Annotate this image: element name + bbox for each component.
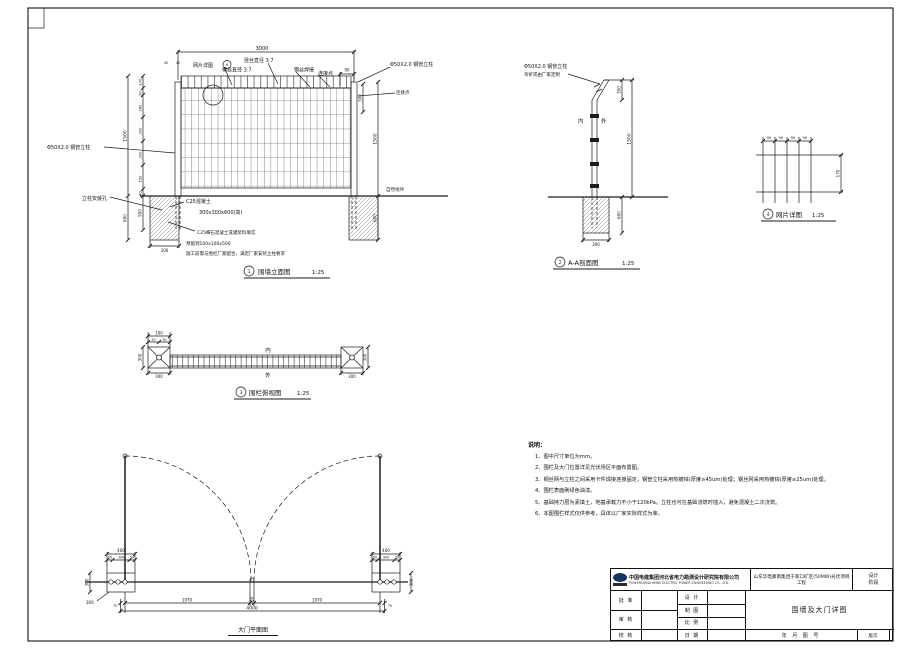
- gate-dim-end-l: 70: [113, 604, 117, 608]
- label-natural-ground: 自然地坪: [386, 186, 404, 193]
- mesh-title: 网片详图: [776, 210, 802, 219]
- plan-label-inner: 内: [265, 346, 271, 354]
- plan-dim-sub2: 50: [162, 338, 166, 342]
- label-reserve-hole: 预留洞100x100x500: [186, 240, 231, 247]
- gate-dim-side-r: 300: [409, 578, 414, 586]
- sec-label-inner: 内: [578, 117, 584, 125]
- field-date: 日 期: [677, 629, 707, 642]
- stage-line2: 阶段: [868, 580, 878, 587]
- mesh-dim-w4: 90: [803, 136, 808, 140]
- label-weld: 钢丝焊接: [294, 67, 314, 74]
- plan-dim-sub1: 50: [151, 338, 155, 342]
- company-name: 中国电建集团河北省电力勘测设计研究院有限公司: [629, 575, 739, 581]
- gate-dim-gap: 60: [250, 597, 254, 601]
- mesh-ref-number: 4: [226, 63, 229, 67]
- note-item-1: 1、图中尺寸单位为mm。: [528, 452, 890, 464]
- dim-off2: 40: [176, 61, 180, 65]
- dim-600-left: 600: [123, 214, 128, 222]
- section-title: A-A剖面图: [568, 258, 598, 267]
- cad-drawing: 3000 90 40 40 170 90 280 300 300 150 40 …: [0, 0, 900, 649]
- label-mesh-ref: 网片详图: [193, 62, 213, 69]
- plan-label-outer: 外: [265, 371, 271, 379]
- field-approve: 批 准: [611, 591, 641, 610]
- gate-dim-post-l: 400: [117, 548, 125, 553]
- plan-callout-no: 3: [240, 390, 243, 396]
- dim-90: 90: [344, 68, 350, 73]
- gate-label-anchor: 300: [86, 600, 94, 605]
- dim-seg1: 170: [139, 78, 143, 86]
- dim-seg3: 280: [139, 104, 143, 112]
- section-callout-no: 2: [559, 260, 562, 266]
- label-install-hole: 立柱安装孔: [82, 195, 107, 202]
- notes-heading: 说明：: [528, 440, 890, 452]
- dim-seg7: 40: [139, 191, 143, 196]
- gate-sub-r2: 300: [383, 556, 389, 560]
- view-plan: 100 50 50 300 300 300 300 内 外 3 围栏俯视图 1:…: [138, 331, 371, 400]
- field-revision: 版次: [857, 629, 889, 642]
- field-review: 审 核: [611, 610, 641, 629]
- company-name-en: POWERCHINA HEBEI ELECTRIC POWER ENGINEER…: [629, 581, 739, 585]
- design-stage-cell: 设计 阶段: [853, 569, 894, 591]
- dim-seg2: 90: [139, 91, 143, 96]
- dim-600-right: 600: [373, 214, 378, 222]
- dim-500: 500: [138, 209, 143, 217]
- section-scale: 1:25: [622, 261, 635, 267]
- field-design: 设 计: [677, 591, 707, 604]
- gate-dim-post-r: 400: [382, 548, 390, 553]
- dim-1500-left: 1500: [123, 130, 129, 142]
- plan-dim-bottom-r: 300: [348, 374, 356, 379]
- view-elevation: 3000 90 40 40 170 90 280 300 300 150 40 …: [47, 46, 448, 278]
- label-post-left: Φ50X2.0 钢管立柱: [47, 144, 90, 151]
- dim-300-right: 300: [358, 94, 363, 102]
- sheet-frame: [28, 8, 893, 641]
- project-name: 山东华电滕南集团于家口矿区(50MW)光伏项目 工程: [751, 569, 853, 591]
- sec-label-bend: 弯折或由厂家定制: [524, 71, 560, 78]
- notes-block: 说明： 1、图中尺寸单位为mm。 2、围栏及大门位置详见光伏场区平面布置图。 3…: [528, 440, 890, 521]
- dim-1500-right: 1500: [373, 133, 379, 145]
- label-wire-v: 竖丝直径 3.7: [244, 57, 274, 64]
- label-post-right: Φ50X2.0 钢管立柱: [390, 61, 433, 68]
- label-wire-h: 横丝直径 3.7: [222, 67, 252, 74]
- label-grout: C25细石混凝土或灌浆料填实: [197, 229, 256, 236]
- dim-seg6: 150: [139, 175, 143, 183]
- field-scale: 比 例: [677, 617, 707, 630]
- label-c25: C25混凝土: [186, 198, 211, 205]
- mesh-dim-w2: 90: [779, 136, 784, 140]
- field-year-month-no: 年 月 图 号: [745, 629, 857, 642]
- gate-dim-side-l: 300: [85, 578, 90, 586]
- plan-dim-bottom-l: 300: [155, 374, 163, 379]
- plan-dim-top: 100: [155, 331, 163, 336]
- label-coop: 施工前需与围栏厂家配合，满足厂家安装立柱要求: [186, 250, 285, 257]
- field-check: 校 核: [611, 629, 641, 642]
- label-joint-right: 连接点: [396, 89, 410, 96]
- mesh-callout-no: 4: [767, 212, 770, 218]
- plan-title: 围栏俯视图: [249, 388, 282, 397]
- label-c25-size: 300x300x600(高): [199, 209, 242, 216]
- dim-seg4: 300: [139, 127, 143, 135]
- stage-line1: 设计: [868, 573, 878, 580]
- note-item-4: 4、围栏表面刷绿色油漆。: [528, 486, 890, 498]
- label-joint: 连接点: [318, 70, 333, 77]
- note-item-6: 6、本图围栏样式仅供参考，具体以厂家实际样式为准。: [528, 509, 890, 521]
- dim-3000: 3000: [256, 46, 269, 52]
- gate-dim-end-r: 70: [388, 604, 392, 608]
- gate-sub-l2: 300: [118, 556, 124, 560]
- elevation-scale: 1:25: [312, 270, 325, 276]
- powerchina-logo-icon: [613, 573, 627, 586]
- note-item-2: 2、围栏及大门位置详见光伏场区平面布置图。: [528, 463, 890, 475]
- dim-seg5: 300: [139, 151, 143, 159]
- dim-found-w: 300: [161, 248, 169, 253]
- sec-label-outer: 外: [601, 117, 607, 125]
- gate-sub-l1: 50: [108, 556, 112, 560]
- plan-dim-right: 300: [363, 353, 368, 361]
- sec-dim-bend: 300: [617, 86, 622, 94]
- title-block: 中国电建集团河北省电力勘测设计研究院有限公司 POWERCHINA HEBEI …: [610, 568, 893, 641]
- elevation-title: 围墙立面图: [258, 267, 291, 276]
- drawing-sheet: 3000 90 40 40 170 90 280 300 300 150 40 …: [0, 0, 900, 649]
- note-item-5: 5、基础持力层为素填土，地基承载力不小于120kPa。立柱也可在基础浇筑时插入，…: [528, 498, 890, 510]
- tb-spacer: [889, 629, 894, 642]
- gate-dim-total: 4000: [246, 606, 258, 612]
- elevation-callout-no: 1: [248, 269, 251, 275]
- sec-dim-height: 1500: [627, 133, 633, 145]
- field-draft: 制 图: [677, 604, 707, 617]
- gate-sub-r1: 50: [373, 556, 377, 560]
- view-section: 300 1500 600 300 Φ50X2.0 钢管立柱 弯折或由厂家定制 内…: [524, 63, 668, 269]
- gate-title: 大门平面图: [238, 626, 268, 634]
- dim-off1: 40: [164, 61, 168, 65]
- view-mesh-detail: 90 90 90 90 170 4 网片详图 1:25: [756, 136, 843, 221]
- gate-sub-l3: 50: [130, 556, 134, 560]
- plan-scale: 1:25: [297, 391, 310, 397]
- sec-dim-found: 300: [592, 242, 600, 247]
- company-cell: 中国电建集团河北省电力勘测设计研究院有限公司 POWERCHINA HEBEI …: [611, 569, 751, 591]
- gate-sub-r3: 50: [395, 556, 399, 560]
- mesh-dim-w1: 90: [767, 136, 772, 140]
- sec-dim-embed: 600: [617, 211, 622, 219]
- mesh-dim-w3: 90: [791, 136, 796, 140]
- tb-divider: [641, 591, 642, 640]
- view-gate: 400 50 300 50 400 50 300 50 300 300 300 …: [85, 454, 415, 636]
- mesh-scale: 1:25: [812, 213, 825, 219]
- gate-dim-leaf-r: 1970: [312, 598, 323, 603]
- tb-divider: [707, 591, 708, 640]
- plan-dim-left: 300: [138, 353, 143, 361]
- mesh-dim-h: 170: [836, 169, 841, 177]
- note-item-3: 3、钢丝网与立柱之间采用卡件焊接连接固定，钢管立柱采用热镀锌(厚度≥45um)处…: [528, 475, 890, 487]
- gate-dim-leaf-l: 1970: [182, 598, 193, 603]
- sec-label-post: Φ50X2.0 钢管立柱: [524, 63, 567, 70]
- drawing-title: 围墙及大门详图: [745, 591, 894, 629]
